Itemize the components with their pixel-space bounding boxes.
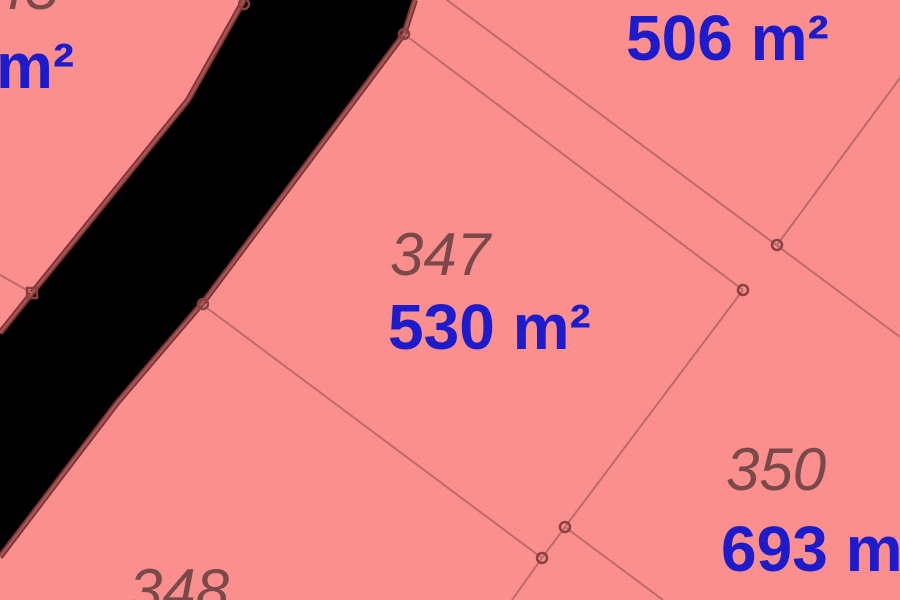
- boundary-506-south: [447, 0, 900, 337]
- boundary-347-north: [404, 34, 743, 290]
- boundary-506-east: [777, 78, 900, 245]
- boundary-347-south: [203, 305, 542, 558]
- boundary-350-south: [565, 527, 663, 600]
- cadastral-map-view[interactable]: 506 m² 347 530 m² 350 693 m² 348 45 m²: [0, 0, 900, 600]
- map-canvas: [0, 0, 900, 600]
- boundary-347-east: [512, 290, 743, 600]
